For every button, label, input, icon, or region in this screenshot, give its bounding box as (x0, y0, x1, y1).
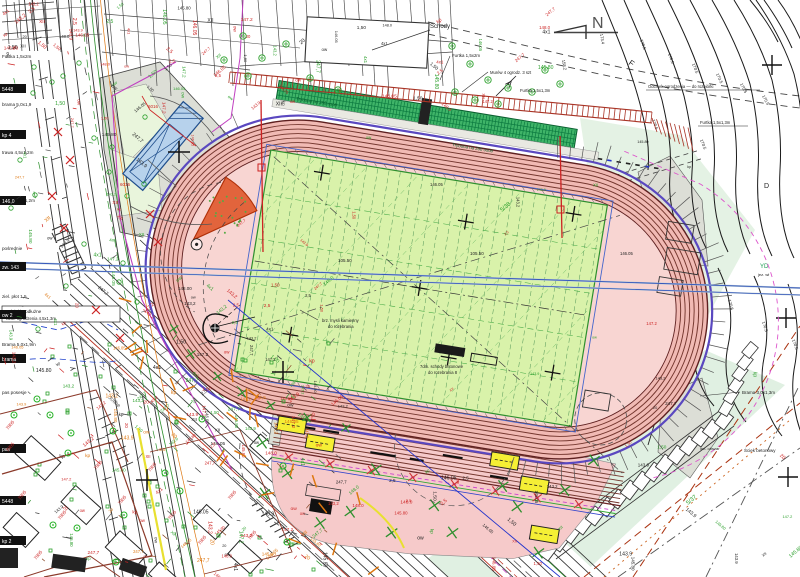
svg-text:XII: XII (112, 200, 118, 206)
svg-text:143,2: 143,2 (11, 352, 16, 364)
svg-text:145.80: 145.80 (36, 368, 52, 374)
svg-text:247,7: 247,7 (88, 550, 100, 555)
svg-text:20: 20 (75, 303, 80, 308)
svg-text:Ściek betonowy: Ściek betonowy (744, 446, 776, 453)
svg-text:105.50: 105.50 (470, 251, 484, 256)
svg-text:146.05: 146.05 (75, 32, 89, 37)
svg-text:146.05: 146.05 (441, 476, 457, 482)
svg-text:4x1: 4x1 (436, 60, 444, 65)
svg-text:143,2: 143,2 (63, 383, 75, 388)
svg-text:6016: 6016 (148, 104, 159, 109)
svg-text:143,2: 143,2 (515, 197, 520, 208)
svg-text:20: 20 (222, 544, 226, 548)
svg-text:2,5: 2,5 (264, 303, 271, 308)
svg-text:kp 2: kp 2 (2, 539, 12, 545)
svg-text:ow: ow (76, 99, 81, 106)
svg-text:2,5: 2,5 (389, 478, 396, 483)
svg-text:148.0: 148.0 (265, 450, 277, 455)
svg-text:146.05: 146.05 (534, 490, 539, 503)
svg-text:247,7: 247,7 (70, 118, 75, 129)
svg-text:ow: ow (295, 78, 302, 83)
svg-text:147.2: 147.2 (646, 321, 657, 326)
svg-text:143,2: 143,2 (206, 521, 212, 534)
svg-text:ow: ow (417, 535, 424, 541)
svg-text:143.9: 143.9 (245, 426, 256, 431)
svg-text:143,2: 143,2 (272, 422, 278, 434)
svg-text:146.05: 146.05 (285, 419, 299, 424)
svg-text:145.80: 145.80 (637, 140, 648, 144)
svg-text:Brama 3,0x1,3m: Brama 3,0x1,3m (742, 390, 775, 395)
svg-text:zw. 143: zw. 143 (2, 265, 19, 271)
svg-text:148.00: 148.00 (178, 286, 192, 291)
svg-text:145.80: 145.80 (433, 74, 439, 90)
svg-text:147.2: 147.2 (181, 66, 186, 78)
svg-text:kp 4: kp 4 (2, 133, 12, 139)
svg-text:ow: ow (290, 99, 295, 104)
svg-text:ow 2: ow 2 (2, 313, 13, 319)
svg-text:1,50: 1,50 (55, 101, 65, 107)
svg-text:XII: XII (20, 44, 25, 49)
svg-text:Muréw 4 ogrodz. 3 szt: Muréw 4 ogrodz. 3 szt (490, 70, 532, 75)
svg-text:4x1: 4x1 (126, 28, 131, 35)
svg-text:1,50: 1,50 (534, 561, 543, 566)
svg-text:ow: ow (231, 26, 236, 33)
svg-text:143,2: 143,2 (184, 301, 196, 306)
svg-text:20: 20 (23, 35, 27, 39)
svg-text:ow: ow (143, 430, 150, 435)
svg-text:ow: ow (47, 236, 53, 241)
svg-text:XII: XII (215, 428, 221, 433)
svg-text:145.80: 145.80 (313, 381, 318, 394)
svg-text:2,5: 2,5 (259, 395, 266, 401)
svg-text:247,7: 247,7 (205, 460, 216, 465)
svg-text:1,50: 1,50 (8, 45, 18, 51)
svg-text:145.80: 145.80 (102, 132, 117, 138)
svg-text:20: 20 (124, 423, 129, 428)
svg-text:143,2: 143,2 (247, 335, 257, 340)
svg-text:7dm. schody betonowe: 7dm. schody betonowe (420, 364, 464, 369)
svg-text:143,2: 143,2 (241, 397, 252, 402)
svg-text:kp: kp (117, 208, 121, 212)
svg-text:146.05: 146.05 (161, 9, 167, 25)
svg-text:143,2: 143,2 (656, 376, 667, 381)
svg-text:1,50: 1,50 (657, 445, 667, 450)
svg-text:1,50: 1,50 (352, 211, 357, 220)
svg-text:146.05: 146.05 (492, 557, 497, 571)
svg-text:5448: 5448 (2, 87, 13, 93)
svg-text:XII: XII (512, 539, 517, 543)
svg-text:146.05: 146.05 (113, 346, 126, 351)
svg-text:kp: kp (281, 101, 286, 106)
svg-text:247,7: 247,7 (336, 479, 347, 484)
svg-text:1,50: 1,50 (176, 340, 186, 346)
svg-text:XII: XII (207, 18, 213, 24)
svg-text:105.50: 105.50 (338, 258, 352, 263)
svg-text:2,5: 2,5 (169, 59, 176, 64)
svg-text:XII: XII (39, 19, 45, 25)
svg-text:147.2: 147.2 (202, 405, 207, 417)
svg-text:147.2: 147.2 (301, 385, 305, 395)
svg-text:4x1: 4x1 (363, 56, 368, 64)
svg-text:ow: ow (124, 64, 129, 69)
svg-text:2,5: 2,5 (232, 320, 239, 325)
svg-text:145.80: 145.80 (234, 415, 239, 429)
svg-text:146.05: 146.05 (620, 251, 633, 256)
svg-text:ow: ow (181, 92, 186, 99)
svg-text:kp: kp (309, 359, 315, 365)
svg-text:4x1: 4x1 (53, 318, 58, 326)
svg-text:ow: ow (316, 444, 323, 449)
svg-text:2,5: 2,5 (406, 498, 412, 503)
svg-text:1,50: 1,50 (101, 116, 109, 121)
svg-text:147.2: 147.2 (241, 17, 253, 23)
svg-text:147.2: 147.2 (61, 477, 72, 482)
svg-text:2,5: 2,5 (233, 302, 240, 307)
svg-text:146.05: 146.05 (110, 271, 116, 286)
svg-text:pas posesje: pas posesje (2, 390, 27, 395)
svg-text:143,2: 143,2 (328, 501, 339, 506)
svg-text:ow: ow (154, 537, 159, 544)
svg-text:143.9: 143.9 (187, 412, 199, 417)
svg-text:143.9: 143.9 (619, 552, 632, 558)
svg-text:jez. wł: jez. wł (757, 272, 769, 277)
svg-text:4x1: 4x1 (542, 29, 550, 35)
svg-text:143.9: 143.9 (17, 401, 27, 406)
svg-text:ow: ow (80, 508, 85, 513)
svg-text:247,7: 247,7 (249, 345, 254, 356)
svg-text:kp: kp (687, 165, 691, 169)
svg-text:4x1: 4x1 (23, 152, 28, 159)
svg-text:143,2: 143,2 (28, 1, 39, 6)
svg-text:ow: ow (322, 47, 328, 52)
svg-text:4x1: 4x1 (266, 326, 274, 331)
svg-text:20: 20 (306, 385, 310, 389)
svg-text:148.0: 148.0 (539, 25, 551, 30)
svg-text:XII: XII (593, 183, 598, 188)
svg-text:145.80: 145.80 (112, 467, 126, 472)
svg-text:ziel. płot 1,5: ziel. płot 1,5 (2, 294, 27, 299)
svg-text:1,50: 1,50 (320, 304, 325, 313)
svg-text:148.0: 148.0 (352, 503, 364, 508)
svg-text:2,5: 2,5 (305, 293, 311, 298)
svg-text:147.2: 147.2 (162, 102, 167, 114)
svg-text:247,7: 247,7 (15, 176, 25, 180)
svg-text:ow: ow (224, 350, 230, 355)
svg-text:146.05: 146.05 (193, 510, 209, 516)
svg-text:146.05: 146.05 (173, 86, 186, 91)
svg-text:ow: ow (291, 507, 298, 512)
svg-text:kp: kp (430, 529, 435, 534)
svg-text:145.80: 145.80 (28, 229, 33, 244)
svg-text:147.2: 147.2 (483, 99, 494, 104)
svg-text:247,7: 247,7 (133, 549, 144, 554)
svg-text:146.05: 146.05 (11, 345, 24, 350)
svg-text:kp: kp (171, 390, 177, 396)
svg-text:ow: ow (366, 135, 372, 140)
svg-text:4x1: 4x1 (109, 238, 117, 243)
svg-text:145.80: 145.80 (69, 533, 74, 547)
svg-text:146.05: 146.05 (430, 182, 443, 187)
svg-text:146.05: 146.05 (191, 135, 195, 147)
svg-text:147.2: 147.2 (238, 531, 244, 544)
svg-text:Furtka 1,5x1,3m: Furtka 1,5x1,3m (520, 88, 551, 93)
svg-text:Odcinek ogrodzenia — do rozbió: Odcinek ogrodzenia — do rozbiórki (648, 84, 713, 89)
svg-text:kp: kp (85, 453, 90, 459)
svg-text:145.80: 145.80 (321, 552, 327, 568)
svg-text:143.9: 143.9 (734, 553, 739, 564)
svg-text:kp: kp (119, 412, 124, 417)
svg-text:143.9: 143.9 (537, 188, 546, 192)
svg-text:148.0: 148.0 (59, 34, 70, 39)
svg-text:6016: 6016 (120, 182, 131, 187)
svg-text:143.9: 143.9 (121, 436, 134, 442)
svg-text:1,50: 1,50 (413, 95, 423, 101)
svg-text:247,7: 247,7 (665, 401, 677, 406)
svg-text:145.80: 145.80 (178, 6, 192, 11)
svg-text:XII: XII (481, 93, 486, 98)
svg-text:1,50: 1,50 (271, 283, 280, 288)
svg-text:1,50: 1,50 (243, 55, 248, 64)
svg-text:2,5: 2,5 (71, 18, 77, 25)
svg-text:145.80: 145.80 (631, 557, 636, 571)
svg-text:Furtka 1,5x2m: Furtka 1,5x2m (452, 53, 480, 58)
svg-text:143.9: 143.9 (9, 330, 14, 341)
svg-text:do rozebrania: do rozebrania (328, 324, 354, 329)
svg-text:N: N (592, 15, 604, 32)
svg-text:20: 20 (653, 406, 657, 410)
svg-text:147.2: 147.2 (783, 514, 793, 519)
svg-text:Furtka 1,5x1,3m: Furtka 1,5x1,3m (700, 120, 731, 125)
svg-text:ow: ow (191, 295, 196, 300)
svg-text:inn. obszar: inn. obszar (700, 446, 720, 451)
svg-text:147.2: 147.2 (197, 352, 209, 357)
svg-text:4x1: 4x1 (381, 41, 388, 46)
svg-text:brz. mysli kamienny: brz. mysli kamienny (322, 318, 360, 323)
svg-text:143,2: 143,2 (547, 484, 558, 489)
svg-text:2,5: 2,5 (462, 476, 469, 481)
svg-text:247,7: 247,7 (197, 558, 210, 564)
svg-text:20: 20 (209, 539, 215, 545)
svg-text:148.0: 148.0 (222, 553, 233, 558)
svg-text:XII: XII (146, 454, 151, 459)
svg-text:145.80: 145.80 (262, 552, 276, 557)
svg-text:143.9: 143.9 (262, 511, 275, 517)
svg-text:kp: kp (752, 372, 758, 378)
svg-text:143,2: 143,2 (338, 403, 349, 408)
svg-text:4x1: 4x1 (299, 458, 305, 466)
svg-text:1,50: 1,50 (432, 491, 438, 501)
svg-text:pośrednie: pośrednie (2, 246, 23, 251)
svg-text:ow: ow (6, 52, 11, 58)
svg-text:247,7: 247,7 (315, 60, 321, 73)
svg-text:1,50: 1,50 (357, 25, 367, 30)
svg-text:143.9: 143.9 (638, 463, 650, 468)
svg-text:247,7: 247,7 (186, 378, 199, 384)
svg-text:146.05: 146.05 (334, 31, 339, 43)
svg-text:XII: XII (139, 232, 144, 237)
svg-text:2,5: 2,5 (215, 73, 221, 78)
svg-text:247,7: 247,7 (228, 407, 241, 413)
svg-text:145.80: 145.80 (113, 409, 118, 423)
svg-text:146,0: 146,0 (2, 199, 15, 205)
svg-text:2,5: 2,5 (106, 19, 113, 25)
svg-text:do rozebrania 8: do rozebrania 8 (428, 370, 458, 375)
svg-text:XII: XII (191, 417, 197, 422)
svg-text:146.05: 146.05 (191, 20, 197, 36)
svg-text:D: D (764, 183, 769, 190)
svg-text:145.80: 145.80 (394, 510, 408, 515)
svg-text:143,2: 143,2 (107, 191, 117, 196)
svg-text:146.05: 146.05 (382, 94, 397, 100)
svg-text:143.9: 143.9 (73, 28, 83, 32)
svg-text:4x1: 4x1 (94, 253, 102, 259)
svg-text:148.0: 148.0 (383, 24, 393, 28)
svg-text:143.9: 143.9 (530, 372, 539, 376)
svg-text:146.05: 146.05 (478, 39, 483, 52)
svg-text:ow: ow (592, 336, 597, 340)
svg-text:147.2: 147.2 (304, 428, 309, 439)
svg-text:5448: 5448 (2, 499, 13, 505)
svg-text:148.0: 148.0 (100, 61, 111, 66)
svg-text:trawa 4,5x1,2m: trawa 4,5x1,2m (2, 150, 34, 155)
svg-text:143,2: 143,2 (272, 46, 277, 57)
